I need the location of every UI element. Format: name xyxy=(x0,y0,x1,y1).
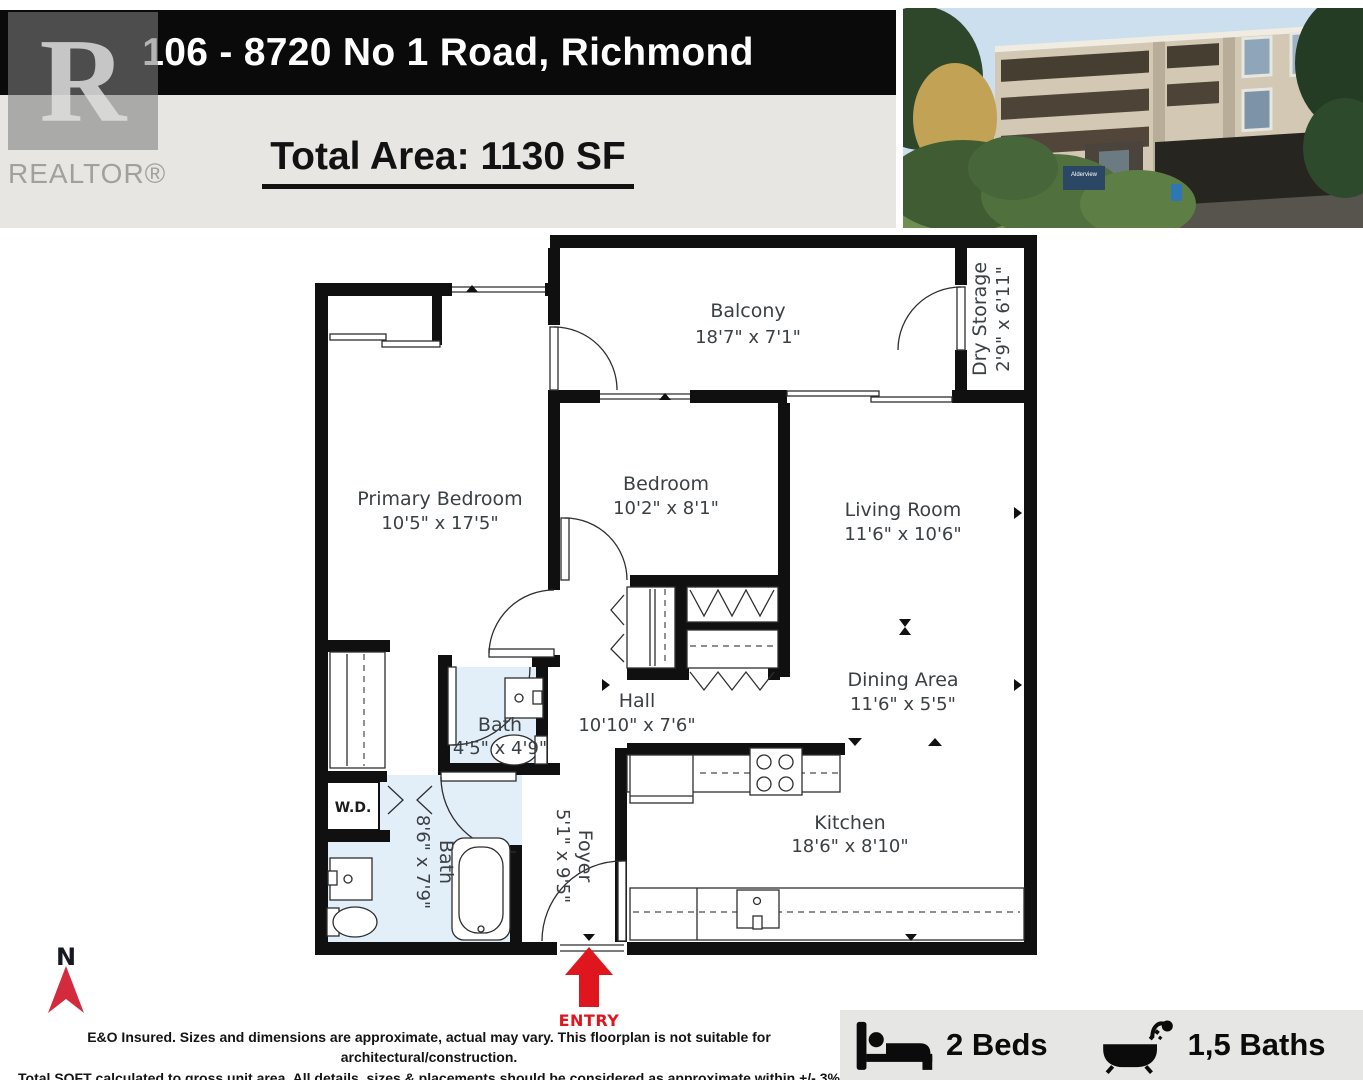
disclaimer-line-2: Total SQFT calculated to gross unit area… xyxy=(0,1068,858,1080)
realtor-r-icon: R xyxy=(40,24,127,138)
realtor-logo-label: REALTOR® xyxy=(8,158,160,190)
kitchen-label: Kitchen xyxy=(814,812,885,834)
baths-label: 1,5 Baths xyxy=(1188,1027,1326,1063)
dining-area-dims: 11'6" x 5'5" xyxy=(850,694,956,715)
balcony-label: Balcony xyxy=(710,300,785,322)
floor-plan: W.D. xyxy=(0,230,1363,1030)
living-room-dims: 11'6" x 10'6" xyxy=(844,524,961,545)
bath-small-dims: 4'5" x 4'9" xyxy=(453,738,547,759)
bath-large-label: Bath xyxy=(435,840,457,884)
bed-icon xyxy=(854,1018,934,1072)
realtor-logo: R REALTOR® xyxy=(8,12,160,190)
washer-dryer: W.D. xyxy=(327,782,379,830)
foyer-dims: 5'1" x 9'5" xyxy=(552,809,573,903)
balcony-dims: 18'7" x 7'1" xyxy=(695,327,801,348)
bedroom-dims: 10'2" x 8'1" xyxy=(613,498,719,519)
beds-label: 2 Beds xyxy=(946,1027,1048,1063)
total-area-text: Total Area: 1130 SF xyxy=(262,135,633,189)
recycle-bin xyxy=(1171,184,1182,201)
realtor-logo-box: R xyxy=(8,12,158,150)
hall-dims: 10'10" x 7'6" xyxy=(578,715,695,736)
building-sign: Alderview xyxy=(1063,166,1105,190)
beds-stat: 2 Beds xyxy=(854,1018,1048,1072)
dry-storage-label: Dry Storage xyxy=(969,262,991,376)
bath-small-label: Bath xyxy=(478,714,522,736)
disclaimer-line-1: E&O Insured. Sizes and dimensions are ap… xyxy=(0,1027,858,1068)
stats-bar: 2 Beds 1,5 Baths xyxy=(840,1010,1363,1080)
building-photo-art: Alderview xyxy=(903,8,1363,228)
entry-arrow-icon: ENTRY xyxy=(559,947,620,1030)
primary-bedroom-label: Primary Bedroom xyxy=(357,488,522,510)
foyer-label: Foyer xyxy=(574,830,596,883)
building-photo: Alderview xyxy=(903,8,1363,228)
north-arrow-icon: N xyxy=(48,943,84,1013)
living-room-label: Living Room xyxy=(845,499,962,521)
building-sign-text: Alderview xyxy=(1071,172,1098,178)
floorplan-flyer: 106 - 8720 No 1 Road, Richmond Total Are… xyxy=(0,0,1363,1080)
disclaimer: E&O Insured. Sizes and dimensions are ap… xyxy=(0,1027,858,1080)
baths-stat: 1,5 Baths xyxy=(1100,1016,1326,1074)
primary-bedroom-dims: 10'5" x 17'5" xyxy=(381,513,498,534)
dining-area-label: Dining Area xyxy=(847,669,958,691)
page-title: 106 - 8720 No 1 Road, Richmond xyxy=(142,31,754,75)
wd-label: W.D. xyxy=(335,800,372,816)
kitchen-dims: 18'6" x 8'10" xyxy=(791,836,908,857)
bedroom-label: Bedroom xyxy=(623,473,709,495)
hall-label: Hall xyxy=(619,690,656,712)
bath-icon xyxy=(1100,1016,1176,1074)
dry-storage-dims: 2'9" x 6'11" xyxy=(993,266,1014,372)
bath-large-dims: 8'6" x 7'9" xyxy=(412,815,433,909)
